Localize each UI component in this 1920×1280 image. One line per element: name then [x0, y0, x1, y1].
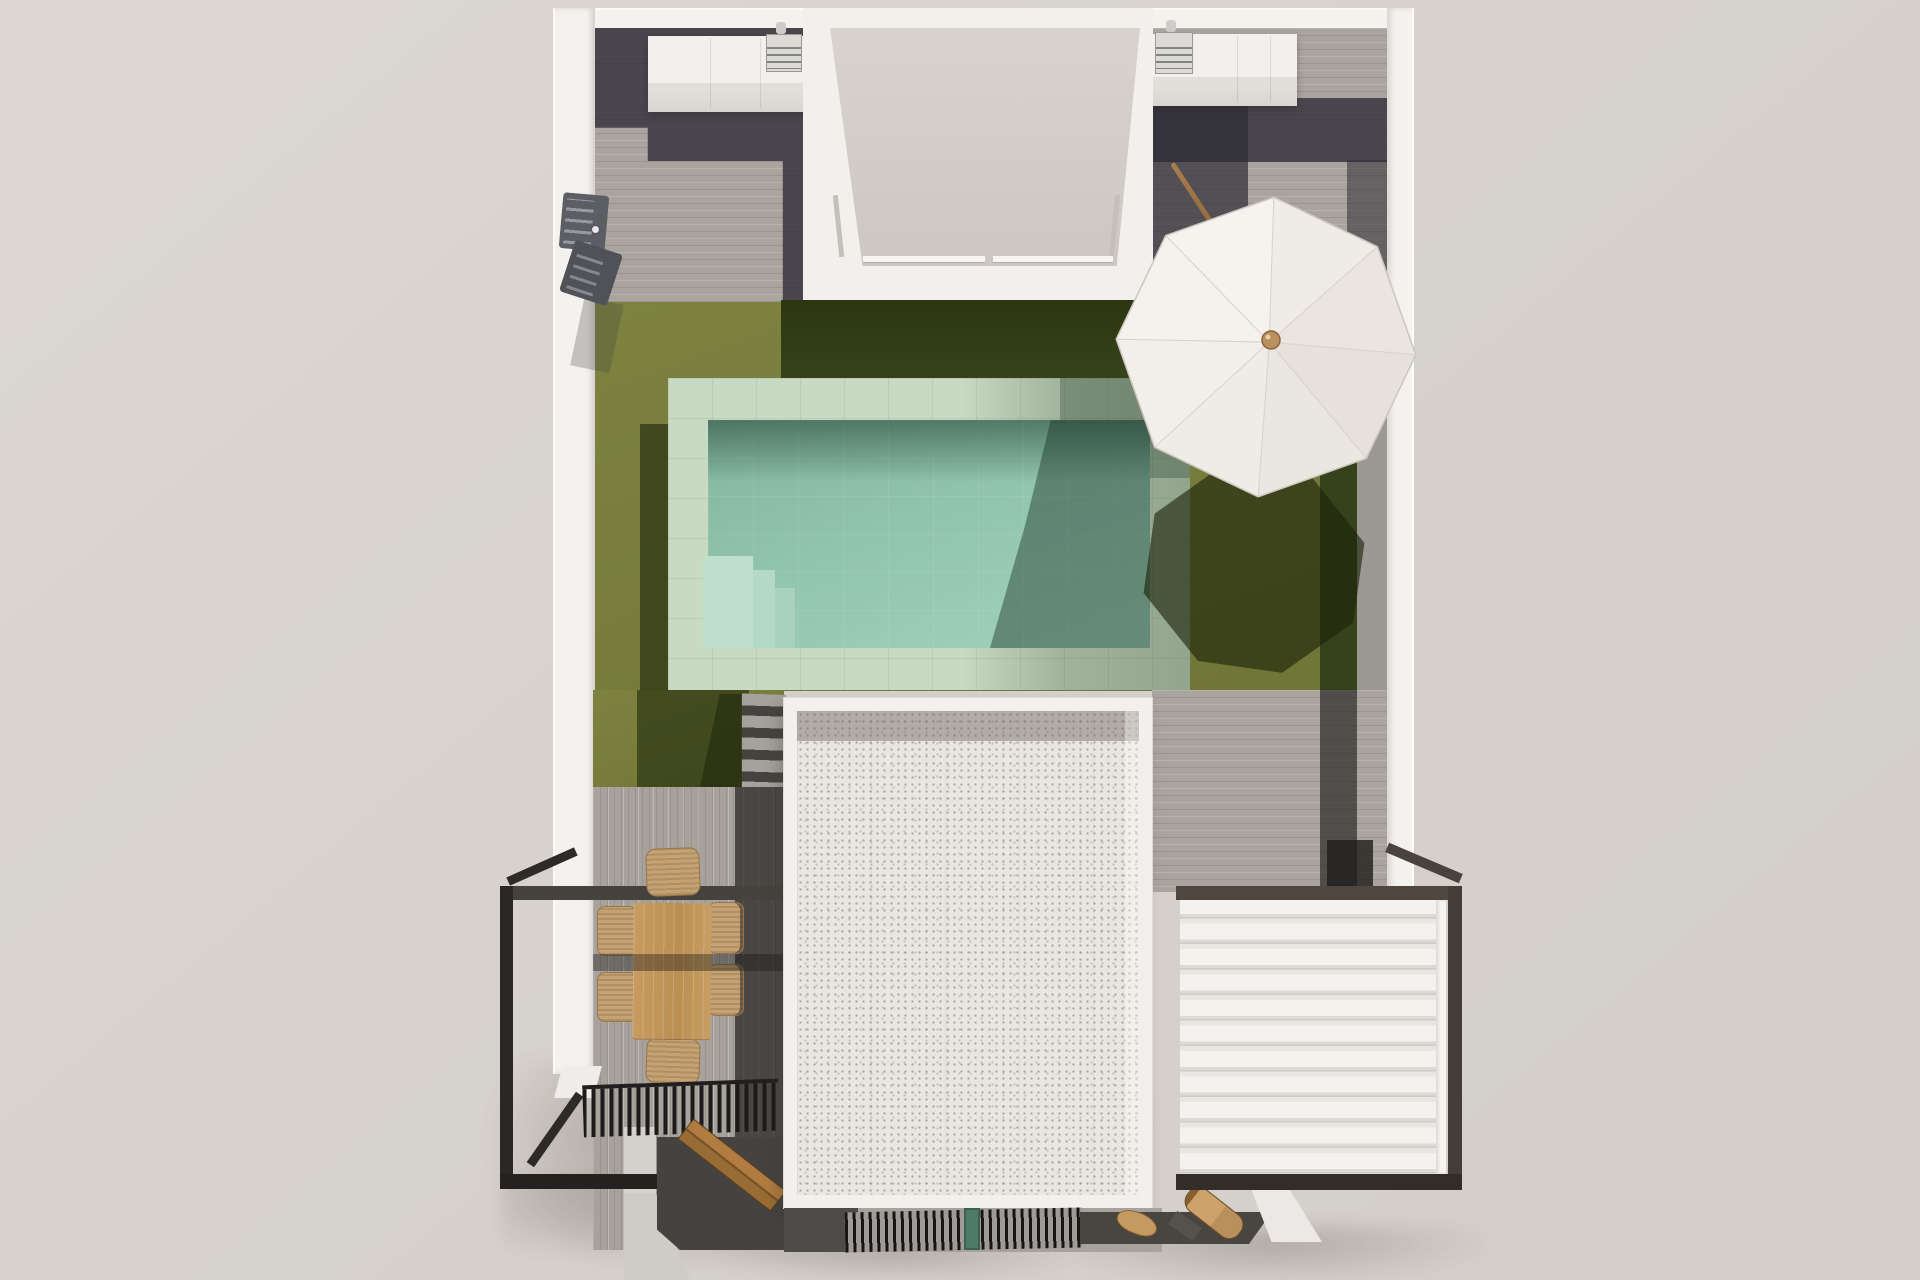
sink-appliance-right-icon — [1155, 32, 1193, 74]
dining-chair-left-2 — [597, 972, 637, 1022]
faucet-right — [1166, 20, 1176, 32]
counter-seam — [710, 38, 711, 108]
counter-seam — [760, 38, 761, 108]
courtyard-railing — [993, 256, 1113, 262]
balcony-frame-left-bar — [500, 886, 513, 1189]
gravel-roof — [784, 698, 1152, 1208]
pergola-frame-bottom-bar — [1176, 1174, 1462, 1190]
gravel-roof-parapet-shadow — [797, 711, 1139, 741]
louvered-pergola — [1180, 898, 1438, 1176]
dining-chair-top — [645, 847, 701, 897]
dining-chair-bottom — [645, 1037, 701, 1085]
dining-chair-right-2 — [708, 964, 744, 1016]
frame-shadow-stripe — [593, 954, 784, 971]
courtyard-floor — [830, 28, 1140, 266]
patio-umbrella — [1101, 182, 1431, 512]
faucet-left — [776, 22, 786, 34]
render-stage — [0, 0, 1920, 1280]
sink-appliance-left-icon — [766, 34, 802, 72]
deck-right-corner-shadow — [1327, 840, 1373, 892]
pergola-frame-top-bar — [1176, 886, 1462, 900]
vent-unit — [964, 1208, 980, 1250]
counter-seam — [1270, 36, 1271, 102]
courtyard-railing — [863, 256, 985, 262]
dining-chair-right-1 — [708, 902, 744, 954]
pool-steps — [703, 556, 753, 648]
dining-table — [632, 903, 711, 1041]
slatted-grill — [582, 1079, 780, 1138]
counter-seam — [1237, 36, 1238, 102]
umbrella-knob — [1262, 331, 1280, 349]
louver-end-caps — [1436, 900, 1446, 1174]
dining-chair-left-1 — [597, 906, 637, 956]
balcony-frame-top-bar — [500, 886, 784, 900]
boundary-wall-left — [553, 8, 595, 1074]
gravel-roof-edge-light — [1125, 711, 1139, 1195]
shower-head-icon — [592, 226, 599, 233]
gravel-roof-surface — [797, 711, 1139, 1195]
pergola-frame-right-bar — [1448, 886, 1462, 1190]
